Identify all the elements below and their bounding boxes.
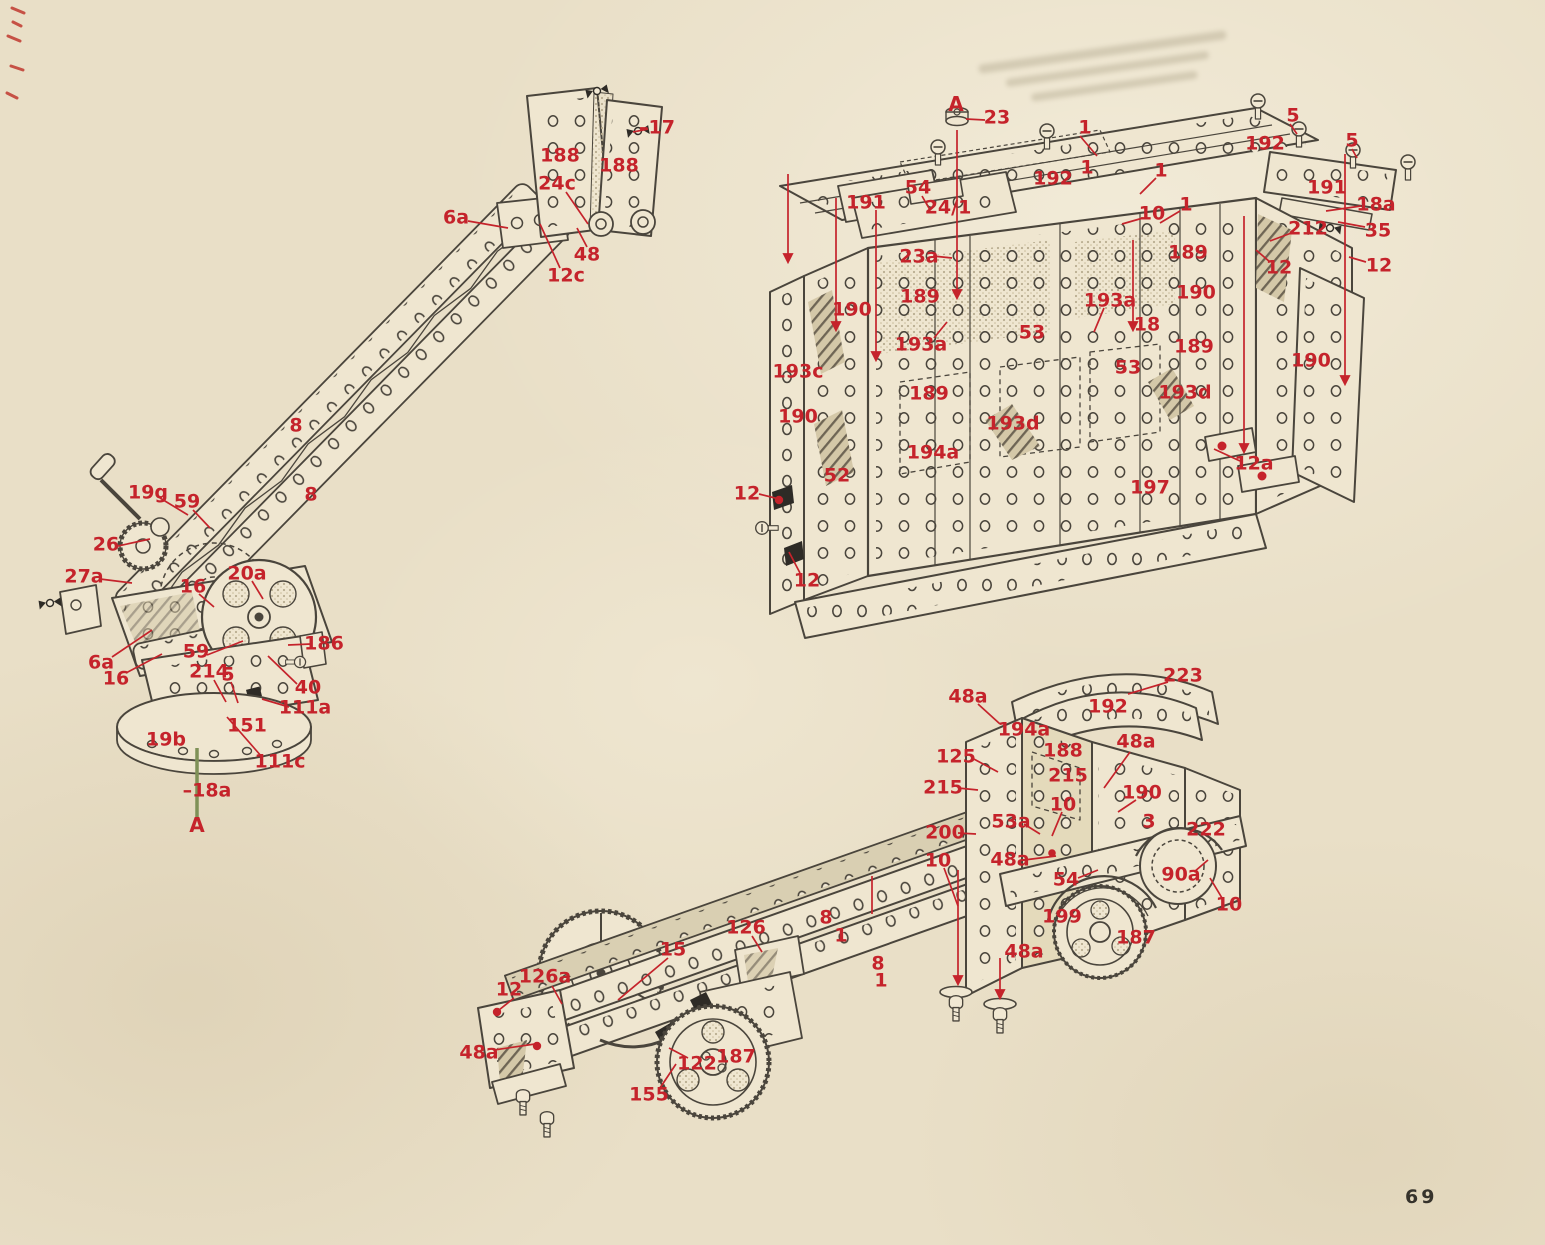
part-label: 12 — [1266, 259, 1292, 278]
part-label: 191 — [846, 194, 886, 213]
part-label: 18 — [1134, 316, 1160, 335]
part-label: 10 — [1216, 896, 1242, 915]
part-label: 1 — [1078, 119, 1091, 138]
part-label: 1 — [1179, 196, 1192, 215]
part-label: 192 — [1033, 170, 1073, 189]
part-label: 48a — [948, 688, 987, 707]
part-label: 53 — [1019, 324, 1045, 343]
part-label: 12 — [794, 572, 820, 591]
part-label: 24c — [538, 175, 576, 194]
part-label: 54 — [905, 179, 931, 198]
part-label: 193a — [1084, 292, 1136, 311]
part-label: 190 — [1122, 784, 1162, 803]
part-label: 222 — [1186, 821, 1226, 840]
part-label: 1 — [874, 972, 887, 991]
part-label: 187 — [1116, 929, 1156, 948]
part-label: 8 — [304, 486, 317, 505]
part-label: 52 — [824, 467, 850, 486]
part-label: 215 — [1048, 767, 1088, 786]
part-label: 5 — [1286, 107, 1299, 126]
part-label: 48a — [990, 851, 1029, 870]
part-label: 111c — [255, 753, 306, 772]
part-label: 18a — [1356, 196, 1395, 215]
part-label: 8 — [289, 417, 302, 436]
part-label: 192 — [1088, 698, 1128, 717]
part-label: 10 — [1139, 205, 1165, 224]
part-label: 15 — [660, 941, 686, 960]
part-label: A — [189, 815, 204, 835]
part-label: 5 — [1345, 132, 1358, 151]
part-label: 40 — [295, 679, 321, 698]
part-label: 194a — [998, 721, 1050, 740]
part-label: 190 — [778, 408, 818, 427]
part-label: 199 — [1042, 908, 1082, 927]
part-label: 48a — [459, 1044, 498, 1063]
part-label: 20a — [227, 565, 266, 584]
part-label: 190 — [1291, 352, 1331, 371]
part-label: 188 — [1043, 742, 1083, 761]
part-label: 122 — [677, 1055, 717, 1074]
part-label: 126a — [519, 968, 571, 987]
part-label: 186 — [304, 635, 344, 654]
part-label: 23a — [899, 248, 938, 267]
part-label: 187 — [716, 1048, 756, 1067]
part-label: 24/1 — [925, 199, 972, 218]
part-label: 48a — [1004, 943, 1043, 962]
page-number: 69 — [1405, 1186, 1437, 1208]
part-label: 53a — [991, 813, 1030, 832]
part-label: 223 — [1163, 667, 1203, 686]
bleed-through-ghost — [978, 30, 1232, 108]
part-label: 188 — [540, 147, 580, 166]
part-label: 197 — [1130, 479, 1170, 498]
part-label: 189 — [1168, 244, 1208, 263]
part-label: 12 — [1366, 257, 1392, 276]
part-label: 191 — [1307, 179, 1347, 198]
part-label: 16 — [180, 578, 206, 597]
part-label: –17 — [639, 119, 675, 138]
part-label: 19g — [128, 484, 168, 503]
part-label: 12 — [734, 485, 760, 504]
part-label: 35 — [1365, 222, 1391, 241]
part-label: 48 — [574, 246, 600, 265]
part-label: 48a — [1116, 733, 1155, 752]
part-label: –18a — [183, 782, 232, 801]
part-label: 1 — [1080, 159, 1093, 178]
part-label: 126 — [726, 919, 766, 938]
part-label: 5 — [221, 666, 234, 685]
part-label: 26 — [93, 536, 119, 555]
part-label: 193c — [773, 363, 824, 382]
part-label: 189 — [900, 288, 940, 307]
part-label: 27a — [64, 568, 103, 587]
part-label: 193a — [895, 336, 947, 355]
part-label: 1 — [1154, 162, 1167, 181]
part-label: 3 — [1142, 813, 1155, 832]
part-label: 125 — [936, 748, 976, 767]
part-label: 6a — [443, 209, 469, 228]
part-label: 19b — [146, 731, 186, 750]
part-label: 193d — [1158, 384, 1211, 403]
part-label: 193d — [986, 415, 1039, 434]
part-label: 192 — [1245, 135, 1285, 154]
part-label: 188 — [599, 157, 639, 176]
part-label: 16 — [103, 670, 129, 689]
part-label: 8 — [819, 909, 832, 928]
part-label: 111a — [279, 699, 331, 718]
part-label: 155 — [629, 1086, 669, 1105]
part-label: 189 — [909, 385, 949, 404]
part-label: 190 — [832, 301, 872, 320]
part-label: 189 — [1174, 338, 1214, 357]
part-label: 151 — [227, 717, 267, 736]
part-label: 10 — [1050, 796, 1076, 815]
part-label: 59 — [174, 493, 200, 512]
part-label: A — [948, 94, 963, 114]
part-label: 200 — [925, 824, 965, 843]
part-label: 12a — [1234, 455, 1273, 474]
page-edge-marks — [7, 8, 24, 98]
manual-page: 188188–1724c4812c6a8819g592627a1620a1866… — [0, 0, 1545, 1245]
part-label: 23 — [984, 109, 1010, 128]
part-label: 90a — [1161, 866, 1200, 885]
part-label: 194a — [907, 444, 959, 463]
part-label: 12c — [547, 267, 585, 286]
part-label: 10 — [925, 852, 951, 871]
part-label: 54 — [1053, 871, 1079, 890]
part-label: 215 — [923, 779, 963, 798]
part-label: 59 — [183, 643, 209, 662]
part-label: 12 — [496, 981, 522, 1000]
part-label: 212 — [1288, 220, 1328, 239]
part-label: 1 — [834, 927, 847, 946]
part-label: 53 — [1115, 359, 1141, 378]
part-label: 190 — [1176, 284, 1216, 303]
